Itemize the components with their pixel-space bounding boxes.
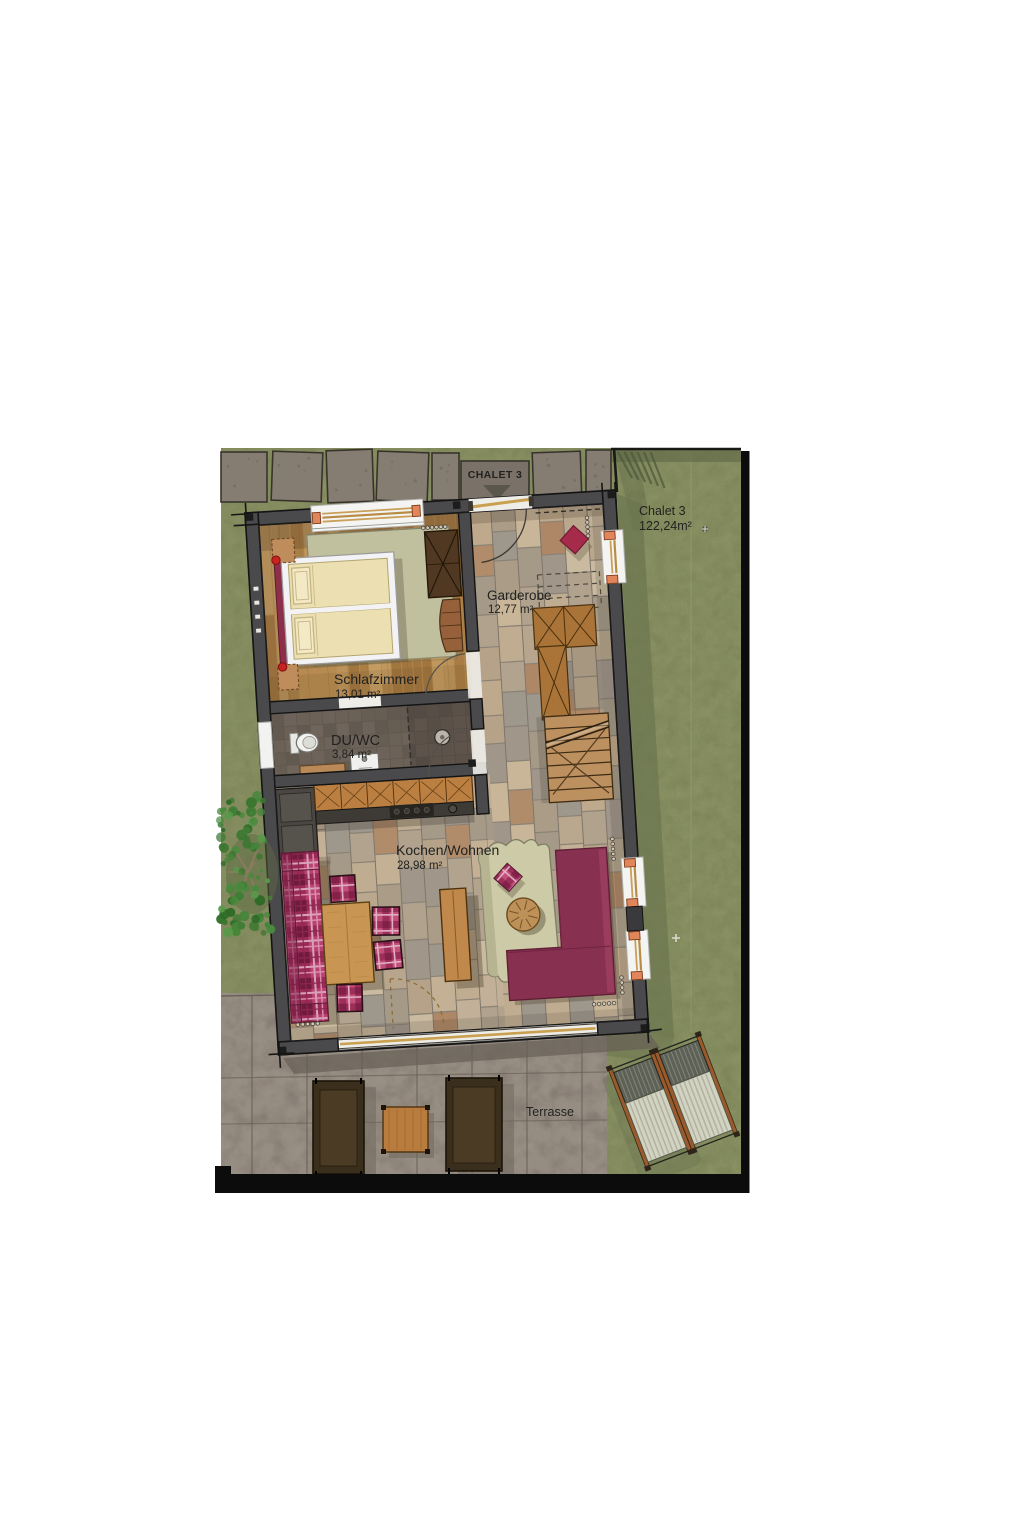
svg-text:Terrasse: Terrasse (526, 1105, 574, 1119)
svg-text:122,24m²: 122,24m² (639, 519, 692, 533)
svg-text:CHALET 3: CHALET 3 (468, 469, 523, 481)
svg-text:DU/WC: DU/WC (331, 733, 380, 749)
svg-text:Kochen/Wohnen: Kochen/Wohnen (396, 842, 499, 858)
svg-text:3,84 m²: 3,84 m² (332, 749, 371, 761)
svg-text:Chalet 3: Chalet 3 (639, 504, 686, 518)
svg-text:Schlafzimmer: Schlafzimmer (334, 671, 419, 687)
svg-text:Garderobe: Garderobe (487, 588, 552, 603)
svg-text:28,98 m²: 28,98 m² (397, 860, 443, 872)
svg-text:13,01 m²: 13,01 m² (335, 689, 381, 701)
svg-text:12,77 m²: 12,77 m² (488, 604, 534, 616)
